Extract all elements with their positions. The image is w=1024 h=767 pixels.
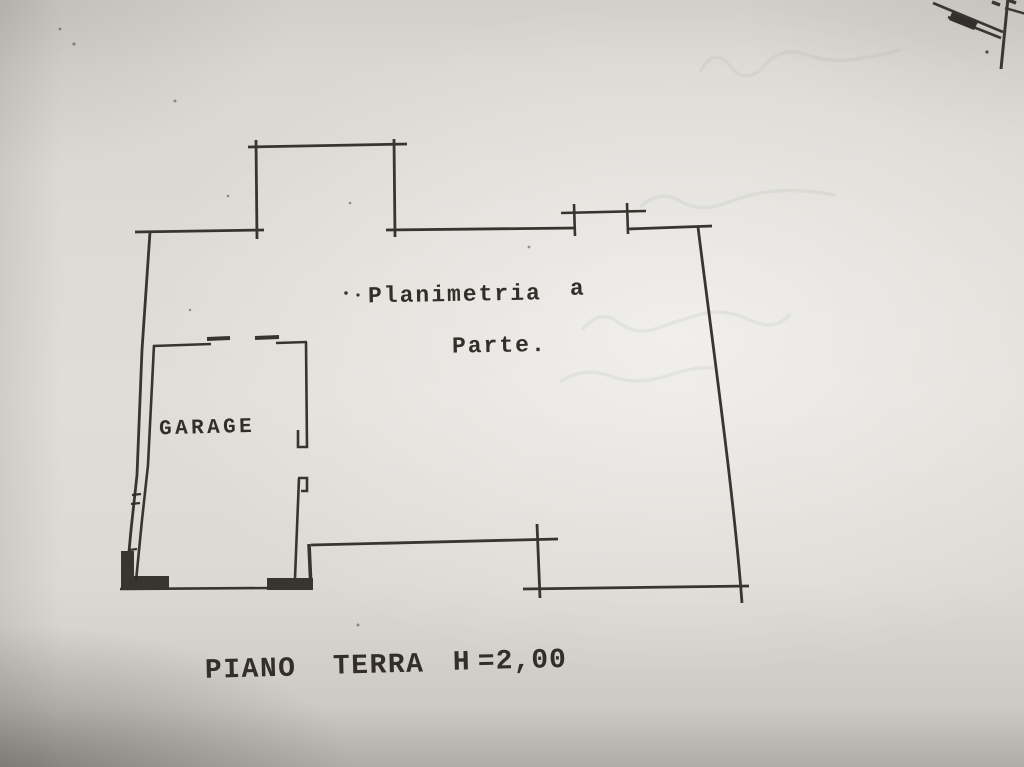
footer-caption: PIANO TERRA H =2,00 xyxy=(205,645,568,687)
wall-thickening-corner xyxy=(121,551,169,589)
ghost-handwriting xyxy=(560,50,900,382)
garage-room-label: GARAGE xyxy=(159,416,256,442)
footer-terra: TERRA xyxy=(333,649,425,682)
outer-walls xyxy=(120,139,749,603)
annotation-a: a xyxy=(570,276,584,302)
annotation-parte: Parte. xyxy=(452,332,547,360)
window-symbol-top xyxy=(561,203,646,236)
map-fragment xyxy=(933,0,1024,69)
footer-height-value: =2,00 xyxy=(478,645,568,678)
lintel-dash-right xyxy=(255,337,279,338)
annotation-planimetria: Planimetria xyxy=(368,280,542,309)
lintel-dash-left xyxy=(207,338,230,339)
garage-walls xyxy=(129,337,307,581)
footer-piano: PIANO xyxy=(205,654,297,687)
annotation-dots xyxy=(344,291,359,296)
footer-h: H xyxy=(453,647,471,678)
floor-plan-drawing: Planimetria a Parte. GARAGE PIANO TERRA … xyxy=(0,0,1024,767)
wall-thickening-bottom xyxy=(267,578,313,590)
scanned-floorplan-photo: Planimetria a Parte. GARAGE PIANO TERRA … xyxy=(0,0,1024,767)
